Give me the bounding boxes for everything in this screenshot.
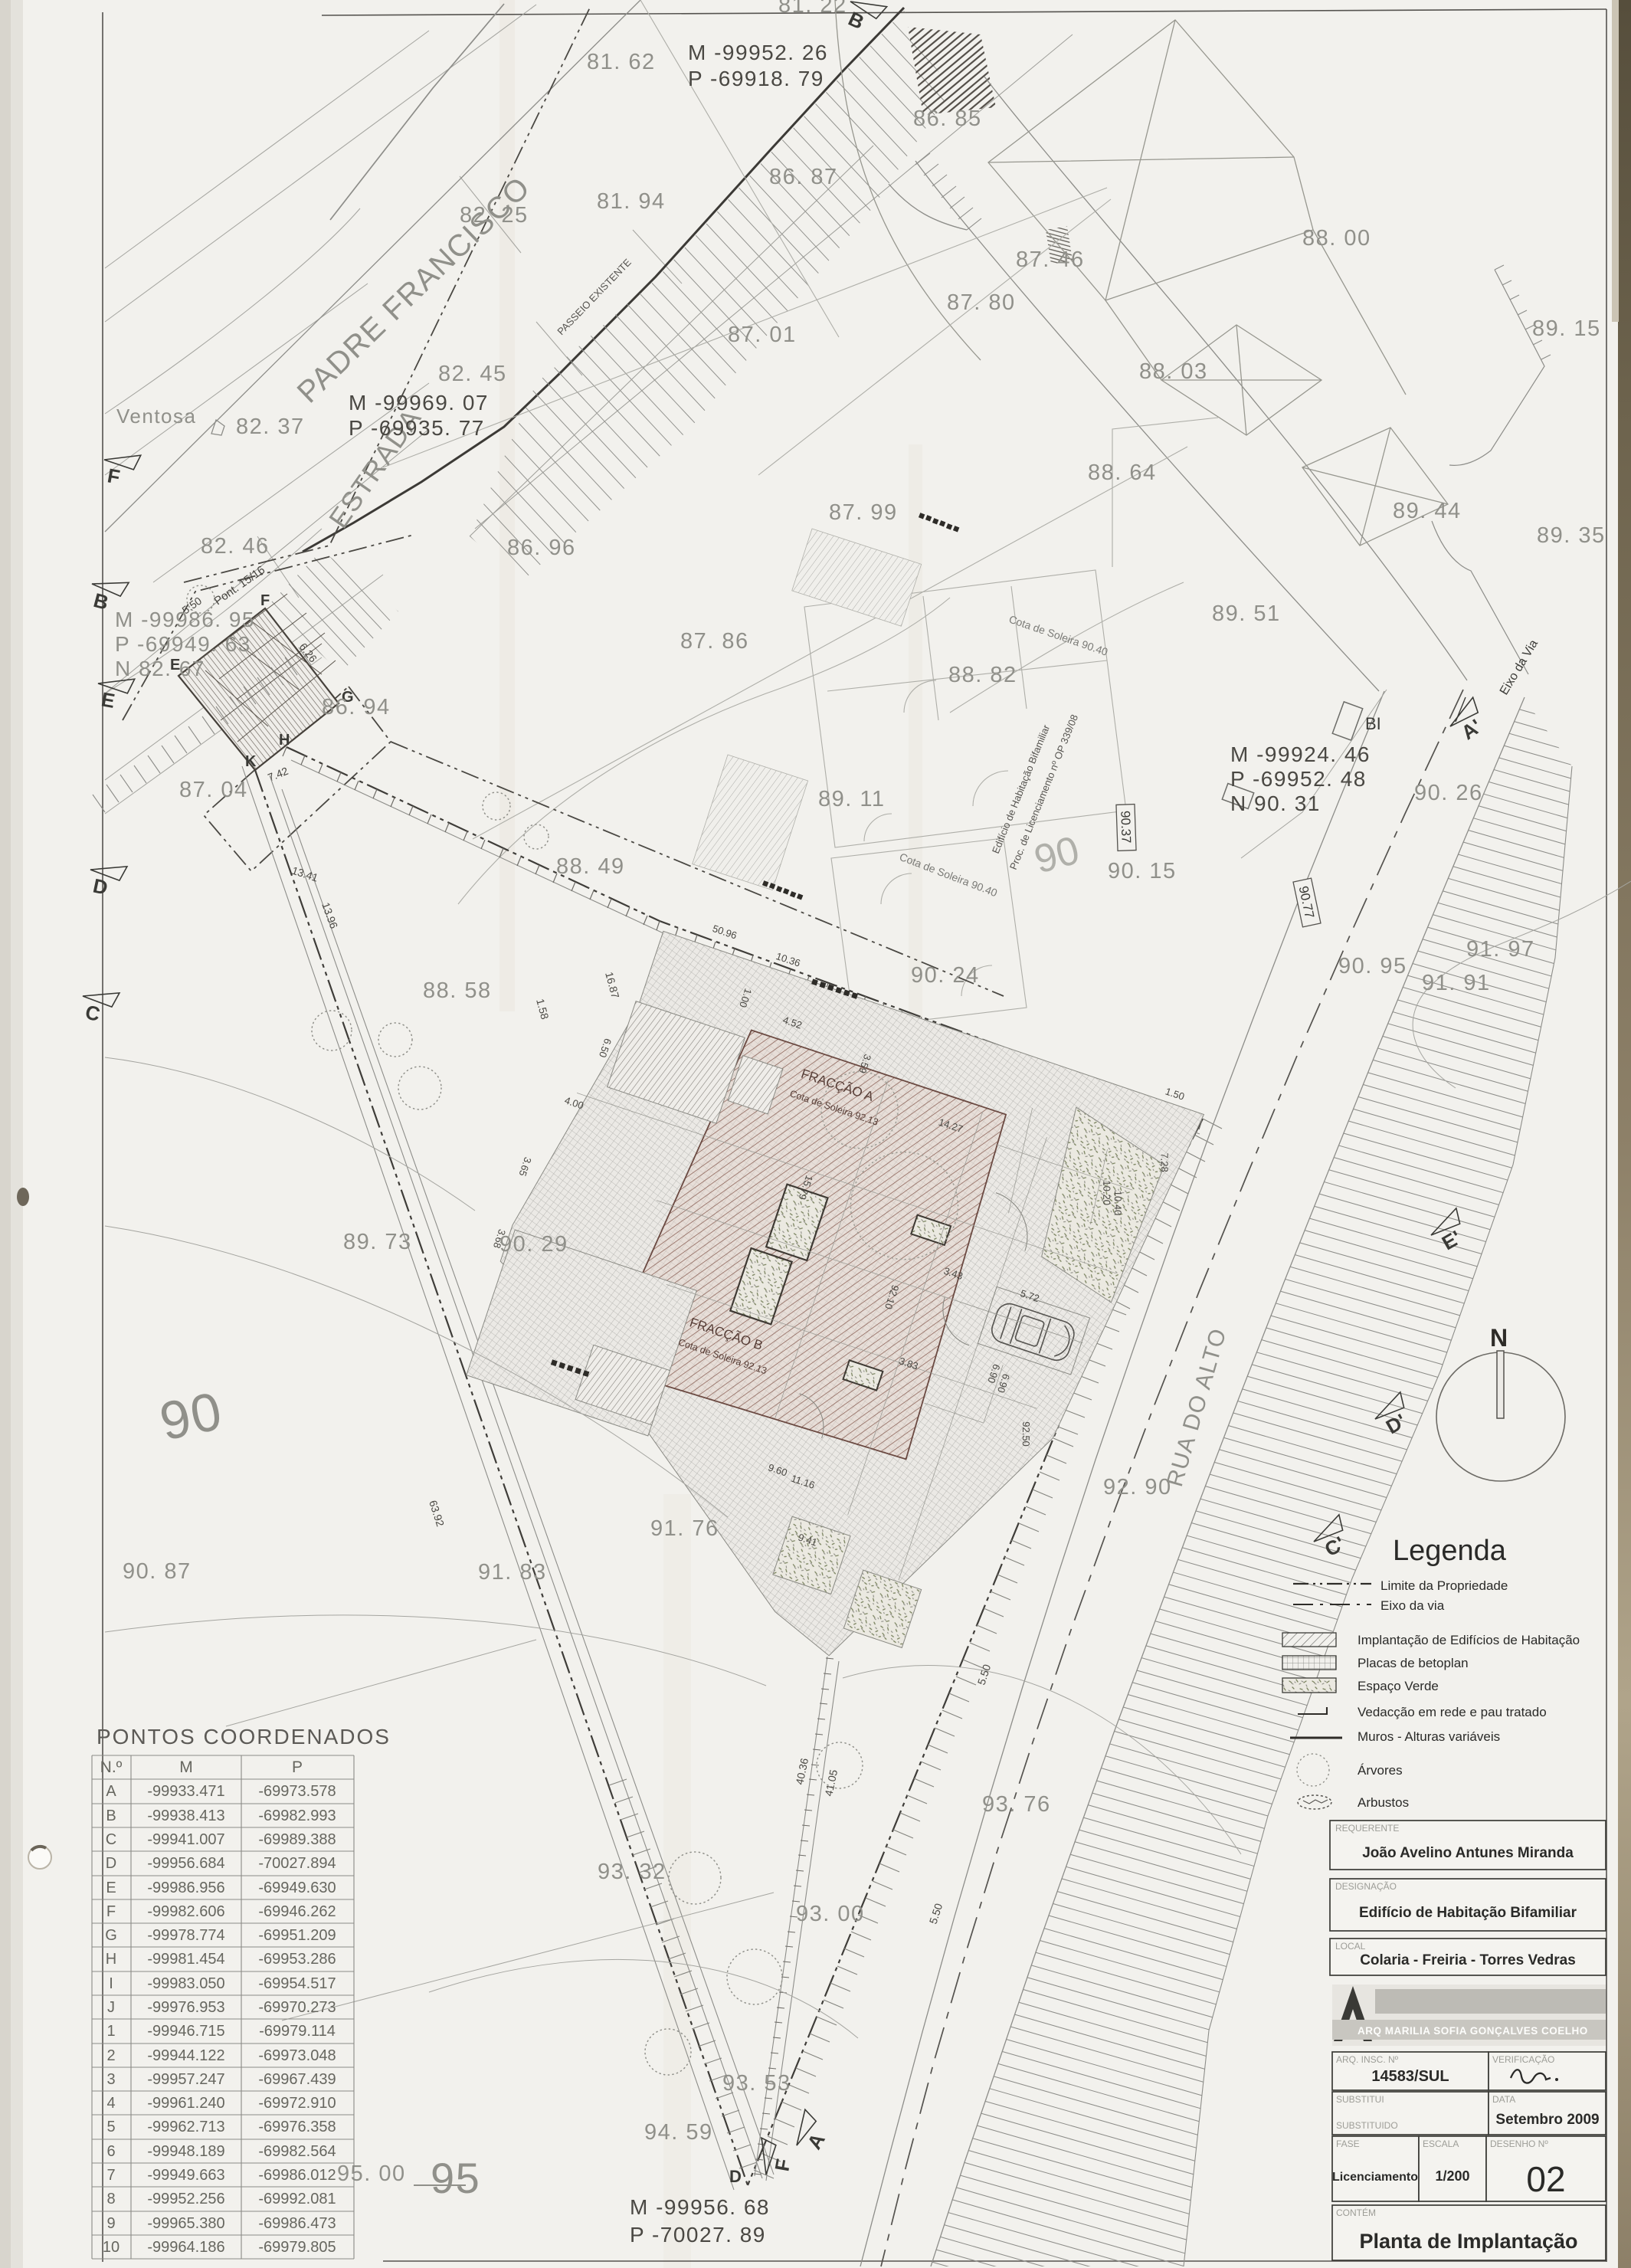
svg-text:87. 99: 87. 99 bbox=[829, 500, 898, 525]
svg-text:DESENHO Nº: DESENHO Nº bbox=[1490, 2139, 1548, 2149]
svg-text:82. 45: 82. 45 bbox=[438, 362, 507, 386]
svg-text:M -99969. 07: M -99969. 07 bbox=[349, 391, 489, 415]
svg-text:6: 6 bbox=[106, 2143, 115, 2160]
svg-text:-69949.630: -69949.630 bbox=[258, 1880, 336, 1896]
svg-text:P -70027. 89: P -70027. 89 bbox=[630, 2223, 766, 2247]
svg-text:-99965.380: -99965.380 bbox=[147, 2215, 224, 2232]
svg-text:P -69949. 63: P -69949. 63 bbox=[115, 632, 251, 656]
svg-text:86. 96: 86. 96 bbox=[507, 536, 576, 560]
svg-text:88. 49: 88. 49 bbox=[556, 854, 625, 879]
svg-text:92. 90: 92. 90 bbox=[1103, 1475, 1172, 1499]
svg-text:-99949.663: -99949.663 bbox=[147, 2167, 224, 2184]
svg-text:-69986.473: -69986.473 bbox=[258, 2215, 336, 2232]
svg-text:89. 15: 89. 15 bbox=[1532, 316, 1601, 341]
svg-text:82. 37: 82. 37 bbox=[236, 415, 305, 439]
svg-text:Placas de betoplan: Placas de betoplan bbox=[1358, 1656, 1469, 1670]
svg-text:DATA: DATA bbox=[1492, 2094, 1515, 2105]
svg-text:VERIFICAÇÃO: VERIFICAÇÃO bbox=[1492, 2054, 1554, 2065]
svg-text:81. 62: 81. 62 bbox=[587, 50, 656, 74]
svg-text:M -99924. 46: M -99924. 46 bbox=[1230, 742, 1371, 766]
svg-text:-69976.358: -69976.358 bbox=[258, 2119, 336, 2135]
svg-text:-69953.286: -69953.286 bbox=[258, 1951, 336, 1968]
svg-text:Setembro 2009: Setembro 2009 bbox=[1495, 2112, 1599, 2128]
svg-text:90.37: 90.37 bbox=[1118, 811, 1133, 844]
svg-text:3: 3 bbox=[106, 2071, 115, 2088]
svg-text:Vedacção em rede e pau tratado: Vedacção em rede e pau tratado bbox=[1358, 1705, 1547, 1719]
svg-text:P -69952. 48: P -69952. 48 bbox=[1230, 767, 1367, 791]
svg-text:PONTOS COORDENADOS: PONTOS COORDENADOS bbox=[97, 1725, 391, 1749]
svg-text:M -99986. 95: M -99986. 95 bbox=[115, 608, 255, 631]
svg-text:89. 11: 89. 11 bbox=[818, 787, 885, 811]
svg-text:1/200: 1/200 bbox=[1435, 2168, 1469, 2184]
svg-text:N 82. 67: N 82. 67 bbox=[115, 657, 205, 680]
svg-text:H: H bbox=[106, 1951, 116, 1968]
svg-text:E: E bbox=[106, 1880, 116, 1896]
svg-text:-99978.774: -99978.774 bbox=[147, 1927, 224, 1944]
svg-text:-99938.413: -99938.413 bbox=[147, 1808, 224, 1824]
svg-text:G: G bbox=[105, 1927, 117, 1944]
svg-text:89. 35: 89. 35 bbox=[1537, 523, 1606, 548]
svg-text:D: D bbox=[106, 1855, 116, 1872]
svg-text:F: F bbox=[260, 592, 270, 609]
svg-text:J: J bbox=[107, 1999, 115, 2016]
svg-text:ESCALA: ESCALA bbox=[1423, 2139, 1459, 2149]
svg-text:8: 8 bbox=[106, 2191, 115, 2207]
svg-text:CONTÉM: CONTÉM bbox=[1336, 2207, 1376, 2218]
svg-text:A: A bbox=[106, 1783, 116, 1800]
svg-text:90. 26: 90. 26 bbox=[1414, 781, 1483, 805]
svg-text:H: H bbox=[279, 732, 290, 749]
svg-text:DESIGNAÇÃO: DESIGNAÇÃO bbox=[1335, 1881, 1397, 1892]
svg-text:-99982.606: -99982.606 bbox=[147, 1903, 224, 1920]
svg-text:FASE: FASE bbox=[1336, 2139, 1360, 2149]
svg-text:5: 5 bbox=[106, 2119, 115, 2135]
svg-text:B: B bbox=[106, 1808, 116, 1824]
svg-text:-99933.471: -99933.471 bbox=[147, 1783, 224, 1800]
svg-text:86. 85: 86. 85 bbox=[913, 107, 982, 131]
svg-text:BI: BI bbox=[1365, 714, 1381, 733]
svg-text:N: N bbox=[1490, 1324, 1508, 1352]
svg-text:89. 51: 89. 51 bbox=[1212, 601, 1281, 626]
svg-text:LOCAL: LOCAL bbox=[1335, 1941, 1366, 1952]
svg-text:10: 10 bbox=[103, 2239, 120, 2256]
svg-text:Edifício de Habitação Bifamili: Edifício de Habitação Bifamiliar bbox=[1359, 1905, 1577, 1921]
svg-text:10.20: 10.20 bbox=[1101, 1180, 1112, 1205]
svg-text:-99976.953: -99976.953 bbox=[147, 1999, 224, 2016]
svg-text:86. 87: 86. 87 bbox=[769, 165, 838, 189]
svg-text:-69979.805: -69979.805 bbox=[258, 2239, 336, 2256]
svg-text:SUBSTITUIDO: SUBSTITUIDO bbox=[1336, 2120, 1398, 2131]
svg-text:91. 97: 91. 97 bbox=[1466, 937, 1535, 962]
svg-text:-99944.122: -99944.122 bbox=[147, 2047, 224, 2064]
svg-text:7.28: 7.28 bbox=[1159, 1152, 1171, 1172]
svg-text:-99941.007: -99941.007 bbox=[147, 1831, 224, 1848]
svg-text:87. 46: 87. 46 bbox=[1016, 247, 1085, 272]
svg-text:M -99952. 26: M -99952. 26 bbox=[688, 41, 828, 64]
svg-text:90: 90 bbox=[155, 1381, 228, 1452]
svg-text:P -69935. 77: P -69935. 77 bbox=[349, 416, 485, 440]
svg-text:-69973.048: -69973.048 bbox=[258, 2047, 336, 2064]
svg-text:-69951.209: -69951.209 bbox=[258, 1927, 336, 1944]
svg-text:Legenda: Legenda bbox=[1393, 1535, 1507, 1567]
svg-text:93. 53: 93. 53 bbox=[722, 2071, 791, 2096]
svg-text:90. 24: 90. 24 bbox=[911, 963, 980, 988]
svg-text:-69982.993: -69982.993 bbox=[258, 1808, 336, 1824]
svg-text:ARQ. INSC. Nº: ARQ. INSC. Nº bbox=[1336, 2054, 1399, 2065]
svg-text:91. 76: 91. 76 bbox=[650, 1516, 719, 1541]
svg-text:94. 59: 94. 59 bbox=[644, 2120, 713, 2145]
svg-text:Implantação de Edifícios de Ha: Implantação de Edifícios de Habitação bbox=[1358, 1633, 1580, 1647]
svg-text:-99964.186: -99964.186 bbox=[147, 2239, 224, 2256]
svg-text:Planta de Implantação: Planta de Implantação bbox=[1359, 2230, 1577, 2253]
svg-text:D: D bbox=[729, 2167, 742, 2186]
svg-text:-99957.247: -99957.247 bbox=[147, 2071, 224, 2088]
svg-text:-70027.894: -70027.894 bbox=[258, 1855, 336, 1872]
svg-text:N.º: N.º bbox=[100, 1758, 123, 1776]
svg-text:-99946.715: -99946.715 bbox=[147, 2023, 224, 2040]
svg-text:2: 2 bbox=[106, 2047, 115, 2064]
svg-text:4: 4 bbox=[106, 2095, 115, 2112]
svg-text:-99962.713: -99962.713 bbox=[147, 2119, 224, 2135]
svg-text:81. 22: 81. 22 bbox=[778, 0, 847, 18]
svg-text:M: M bbox=[179, 1758, 193, 1776]
svg-text:-69970.273: -69970.273 bbox=[258, 1999, 336, 2016]
svg-text:90. 15: 90. 15 bbox=[1108, 859, 1177, 883]
svg-text:-99956.684: -99956.684 bbox=[147, 1855, 224, 1872]
svg-text:-69972.910: -69972.910 bbox=[258, 2095, 336, 2112]
svg-text:82. 46: 82. 46 bbox=[201, 534, 270, 559]
svg-text:-99961.240: -99961.240 bbox=[147, 2095, 224, 2112]
svg-text:9: 9 bbox=[106, 2215, 115, 2232]
svg-text:-69989.388: -69989.388 bbox=[258, 1831, 336, 1848]
svg-text:M -99956. 68: M -99956. 68 bbox=[630, 2195, 770, 2219]
svg-text:-99981.454: -99981.454 bbox=[147, 1951, 224, 1968]
svg-text:89. 73: 89. 73 bbox=[343, 1230, 412, 1254]
svg-text:N 90. 31: N 90. 31 bbox=[1230, 792, 1321, 815]
svg-text:I: I bbox=[109, 1975, 113, 1992]
svg-text:REQUERENTE: REQUERENTE bbox=[1335, 1823, 1399, 1834]
svg-text:-69967.439: -69967.439 bbox=[258, 2071, 336, 2088]
svg-text:-69979.114: -69979.114 bbox=[259, 2023, 336, 2040]
svg-text:87. 04: 87. 04 bbox=[179, 778, 248, 802]
svg-text:87. 01: 87. 01 bbox=[728, 323, 797, 347]
svg-text:-69992.081: -69992.081 bbox=[258, 2191, 336, 2207]
svg-text:-99986.956: -99986.956 bbox=[147, 1880, 224, 1896]
svg-text:88. 82: 88. 82 bbox=[948, 663, 1017, 687]
svg-text:-69946.262: -69946.262 bbox=[258, 1903, 336, 1920]
svg-text:88. 64: 88. 64 bbox=[1088, 460, 1157, 485]
svg-text:95: 95 bbox=[431, 2154, 480, 2202]
svg-text:P: P bbox=[292, 1758, 303, 1776]
svg-text:93. 00: 93. 00 bbox=[796, 1902, 865, 1926]
svg-text:SUBSTITUI: SUBSTITUI bbox=[1336, 2094, 1384, 2105]
svg-text:Colaria - Freiria - Torres Ved: Colaria - Freiria - Torres Vedras bbox=[1360, 1952, 1576, 1968]
svg-text:92.50: 92.50 bbox=[1020, 1421, 1032, 1447]
svg-text:90. 95: 90. 95 bbox=[1338, 954, 1407, 978]
svg-text:-69986.012: -69986.012 bbox=[258, 2167, 336, 2184]
svg-text:ARQ MARILIA SOFIA GONÇALVES CO: ARQ MARILIA SOFIA GONÇALVES COELHO bbox=[1358, 2025, 1588, 2037]
svg-text:14583/SUL: 14583/SUL bbox=[1371, 2068, 1449, 2085]
svg-text:P -69918. 79: P -69918. 79 bbox=[688, 67, 824, 90]
svg-text:88. 03: 88. 03 bbox=[1139, 359, 1208, 384]
svg-text:-99983.050: -99983.050 bbox=[147, 1975, 224, 1992]
svg-text:-99948.189: -99948.189 bbox=[147, 2143, 224, 2160]
svg-text:90. 87: 90. 87 bbox=[123, 1559, 192, 1584]
svg-text:95. 00: 95. 00 bbox=[337, 2161, 406, 2186]
svg-text:Espaço Verde: Espaço Verde bbox=[1358, 1679, 1439, 1693]
svg-text:Limite da Propriedade: Limite da Propriedade bbox=[1380, 1578, 1508, 1593]
svg-text:-69973.578: -69973.578 bbox=[258, 1783, 336, 1800]
svg-text:K: K bbox=[245, 753, 257, 770]
svg-text:-99952.256: -99952.256 bbox=[147, 2191, 224, 2207]
svg-text:Arbustos: Arbustos bbox=[1358, 1795, 1409, 1810]
svg-text:F: F bbox=[106, 1903, 116, 1920]
svg-text:Ventosa: Ventosa bbox=[116, 405, 196, 428]
svg-text:90. 29: 90. 29 bbox=[499, 1232, 568, 1257]
svg-text:Eixo da via: Eixo da via bbox=[1380, 1598, 1445, 1613]
svg-text:02: 02 bbox=[1526, 2159, 1565, 2199]
svg-text:93. 32: 93. 32 bbox=[598, 1860, 666, 1884]
svg-text:88. 58: 88. 58 bbox=[423, 978, 492, 1003]
svg-text:87. 86: 87. 86 bbox=[680, 629, 749, 654]
svg-text:Árvores: Árvores bbox=[1358, 1763, 1403, 1778]
svg-text:91. 91: 91. 91 bbox=[1422, 971, 1491, 995]
svg-text:87. 80: 87. 80 bbox=[947, 290, 1016, 315]
svg-text:Muros - Alturas variáveis: Muros - Alturas variáveis bbox=[1358, 1729, 1500, 1744]
svg-text:C: C bbox=[106, 1831, 116, 1848]
svg-text:Licenciamento: Licenciamento bbox=[1332, 2171, 1418, 2184]
svg-text:10.40: 10.40 bbox=[1112, 1191, 1124, 1216]
svg-text:-69982.564: -69982.564 bbox=[258, 2143, 336, 2160]
svg-text:89. 44: 89. 44 bbox=[1393, 499, 1462, 523]
svg-text:7: 7 bbox=[106, 2167, 115, 2184]
svg-text:88. 00: 88. 00 bbox=[1302, 226, 1371, 251]
svg-text:93. 76: 93. 76 bbox=[982, 1792, 1051, 1817]
svg-text:João Avelino Antunes Miranda: João Avelino Antunes Miranda bbox=[1362, 1845, 1574, 1861]
svg-text:1: 1 bbox=[106, 2023, 115, 2040]
svg-text:86. 94: 86. 94 bbox=[322, 695, 391, 719]
svg-text:81. 94: 81. 94 bbox=[597, 189, 666, 214]
svg-text:-69954.517: -69954.517 bbox=[258, 1975, 336, 1992]
svg-text:91. 83: 91. 83 bbox=[478, 1560, 547, 1585]
